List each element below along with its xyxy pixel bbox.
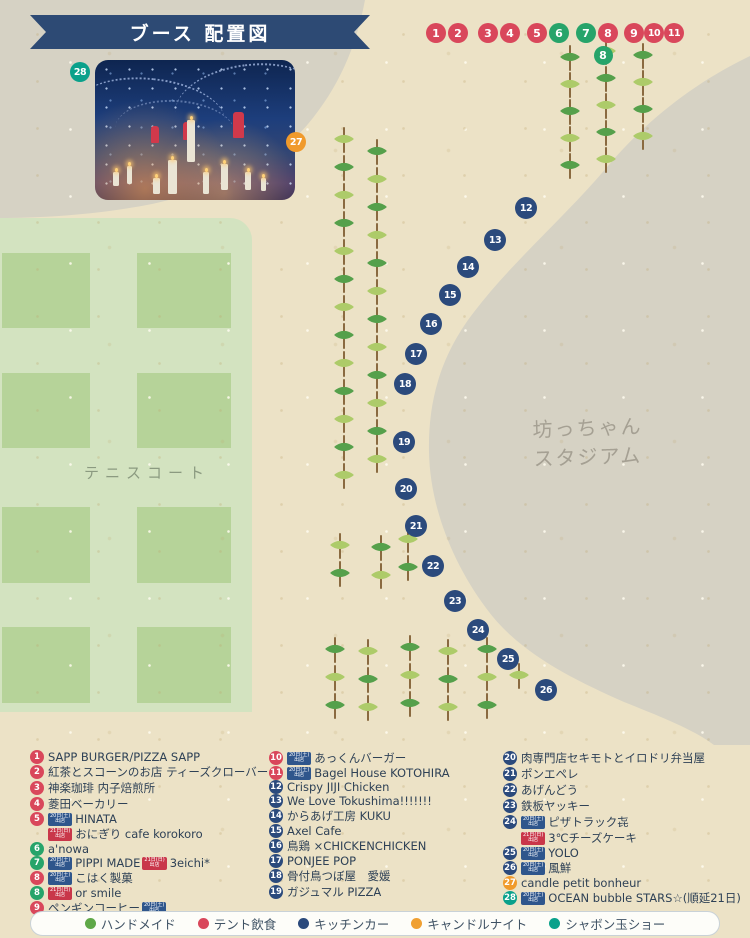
booth-marker-11: 11	[664, 23, 684, 43]
booth-marker-16: 16	[420, 313, 442, 335]
booth-marker-23: 23	[444, 590, 466, 612]
booth-marker-20: 20	[395, 478, 417, 500]
booth-marker-27: 27	[286, 132, 306, 152]
booth-layout-flyer: テニスコート 坊っちゃん スタジアム ブース 配置図 1234567891011…	[0, 0, 750, 938]
booth-marker-6: 6	[549, 23, 569, 43]
booth-marker-3: 3	[478, 23, 498, 43]
booth-marker-22: 22	[422, 555, 444, 577]
booth-marker-4: 4	[500, 23, 520, 43]
booth-marker-1: 1	[426, 23, 446, 43]
booth-marker-15: 15	[439, 284, 461, 306]
booth-marker-8: 8	[594, 46, 613, 65]
booth-marker-9: 9	[624, 23, 644, 43]
booth-marker-17: 17	[405, 343, 427, 365]
booth-marker-28: 28	[70, 62, 90, 82]
booth-marker-layer: 1234567891011828271213141516171819202122…	[0, 0, 750, 938]
booth-marker-21: 21	[405, 515, 427, 537]
booth-marker-19: 19	[393, 431, 415, 453]
booth-marker-7: 7	[576, 23, 596, 43]
booth-marker-18: 18	[394, 373, 416, 395]
booth-marker-12: 12	[515, 197, 537, 219]
booth-marker-8: 8	[598, 23, 618, 43]
booth-marker-2: 2	[448, 23, 468, 43]
booth-marker-14: 14	[457, 256, 479, 278]
booth-marker-5: 5	[527, 23, 547, 43]
booth-marker-25: 25	[497, 648, 519, 670]
booth-marker-24: 24	[467, 619, 489, 641]
booth-marker-10: 10	[644, 23, 664, 43]
booth-marker-13: 13	[484, 229, 506, 251]
booth-marker-26: 26	[535, 679, 557, 701]
